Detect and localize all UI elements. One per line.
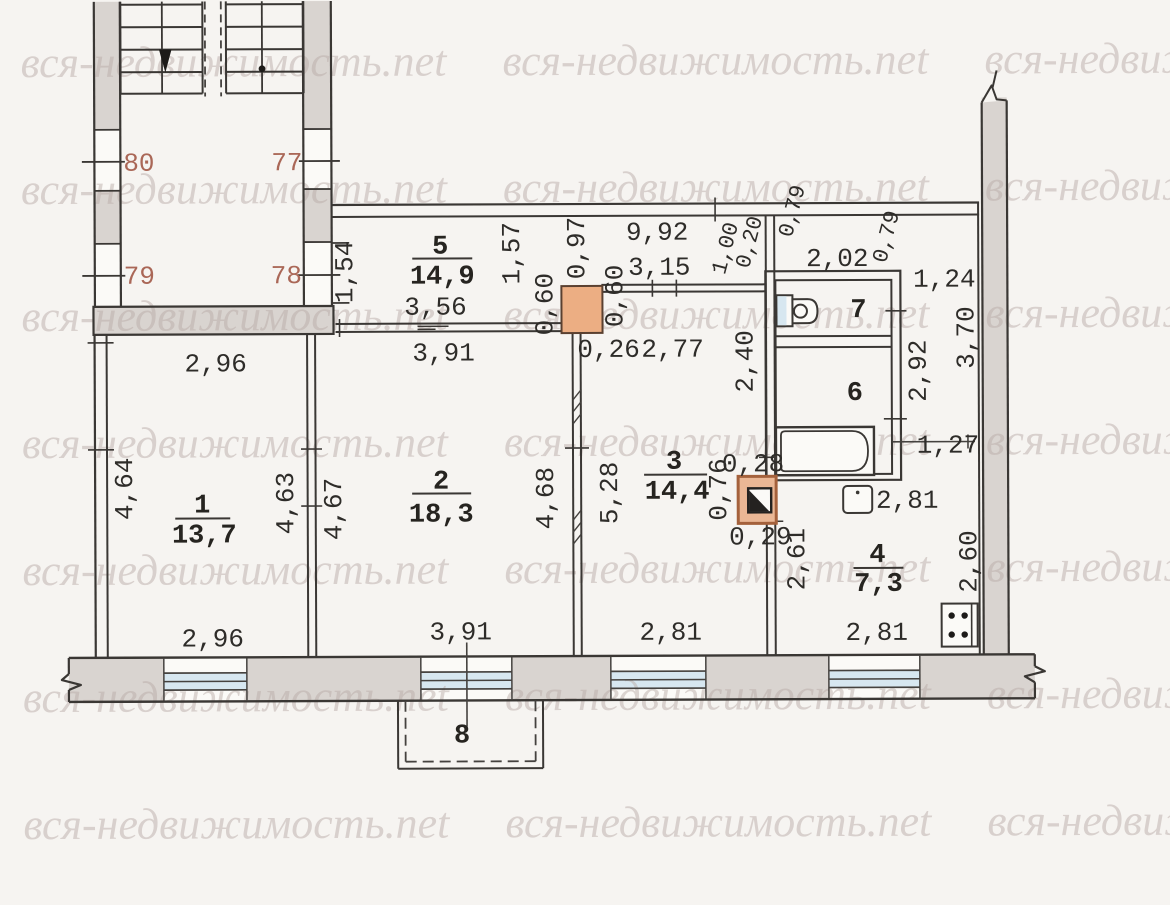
svg-text:7,3: 7,3 — [854, 570, 903, 600]
svg-text:14,4: 14,4 — [645, 478, 710, 508]
svg-text:2,81: 2,81 — [876, 486, 939, 516]
svg-text:0,76: 0,76 — [704, 458, 734, 521]
svg-text:2,02: 2,02 — [806, 244, 869, 274]
svg-text:вся-недвижимость.net: вся-недвижимость.net — [505, 670, 933, 721]
svg-text:3,56: 3,56 — [404, 292, 467, 322]
svg-text:3,91: 3,91 — [429, 617, 492, 647]
svg-text:3,70: 3,70 — [951, 306, 981, 369]
svg-text:78: 78 — [271, 261, 302, 291]
svg-text:вся-недвижимость.net: вся-недвижимость.net — [20, 37, 448, 88]
svg-text:2,92: 2,92 — [904, 339, 934, 402]
svg-text:5,28: 5,28 — [595, 462, 625, 525]
svg-text:вся-недвижимость.net: вся-недвижимость.net — [22, 418, 450, 469]
svg-text:вся-недвижимость.net: вся-недвижимость.net — [985, 287, 1170, 338]
svg-text:2,40: 2,40 — [731, 330, 761, 393]
svg-text:9,92: 9,92 — [626, 218, 689, 248]
svg-text:8: 8 — [454, 721, 470, 751]
svg-text:18,3: 18,3 — [409, 500, 474, 530]
svg-text:вся-недвижимость.net: вся-недвижимость.net — [23, 799, 451, 850]
svg-text:4,63: 4,63 — [271, 472, 301, 535]
svg-text:4,64: 4,64 — [110, 457, 140, 520]
svg-text:вся-недвижимость.net: вся-недвижимость.net — [984, 33, 1170, 84]
svg-text:0,97: 0,97 — [562, 217, 592, 280]
svg-text:вся-недвижимость.net: вся-недвижимость.net — [987, 795, 1170, 846]
svg-text:13,7: 13,7 — [172, 521, 237, 551]
svg-text:1,27: 1,27 — [917, 430, 980, 460]
svg-text:1: 1 — [194, 491, 210, 521]
svg-text:1,24: 1,24 — [913, 264, 976, 294]
svg-text:3,91: 3,91 — [412, 338, 475, 368]
svg-text:2,77: 2,77 — [641, 335, 704, 365]
svg-text:3,15: 3,15 — [628, 253, 691, 283]
svg-text:2,81: 2,81 — [639, 618, 702, 648]
svg-text:2,60: 2,60 — [954, 530, 984, 593]
svg-text:вся-недвижимость.net: вся-недвижимость.net — [986, 414, 1170, 465]
svg-text:6: 6 — [847, 379, 863, 409]
svg-text:79: 79 — [124, 262, 155, 292]
svg-text:2,61: 2,61 — [782, 528, 812, 591]
svg-text:4,67: 4,67 — [319, 478, 349, 541]
svg-text:вся-недвижимость.net: вся-недвижимость.net — [986, 541, 1170, 592]
svg-text:2,81: 2,81 — [845, 618, 908, 648]
svg-text:0,26: 0,26 — [577, 335, 640, 365]
svg-text:вся-недвижимость.net: вся-недвижимость.net — [985, 160, 1170, 211]
svg-text:2,96: 2,96 — [184, 349, 247, 379]
svg-text:1,54: 1,54 — [330, 241, 360, 304]
svg-text:77: 77 — [271, 148, 302, 178]
svg-text:14,9: 14,9 — [410, 262, 475, 292]
svg-text:0,60: 0,60 — [600, 265, 630, 328]
svg-text:вся-недвижимость.net: вся-недвижимость.net — [502, 35, 930, 86]
svg-text:вся-недвижимость.net: вся-недвижимость.net — [22, 545, 450, 596]
svg-text:4,68: 4,68 — [531, 467, 561, 530]
svg-text:7: 7 — [850, 296, 866, 326]
svg-text:1,57: 1,57 — [497, 222, 527, 285]
svg-text:0,60: 0,60 — [530, 273, 560, 336]
svg-text:3: 3 — [666, 448, 682, 478]
svg-text:2,96: 2,96 — [181, 624, 244, 654]
svg-text:80: 80 — [123, 149, 154, 179]
svg-text:4: 4 — [869, 541, 885, 571]
svg-text:вся-недвижимость.net: вся-недвижимость.net — [21, 164, 449, 215]
svg-text:вся-недвижимость.net: вся-недвижимость.net — [23, 672, 451, 723]
svg-text:вся-недвижимость.net: вся-недвижимость.net — [505, 797, 933, 848]
svg-text:вся-недвижимость.net: вся-недвижимость.net — [987, 668, 1170, 719]
